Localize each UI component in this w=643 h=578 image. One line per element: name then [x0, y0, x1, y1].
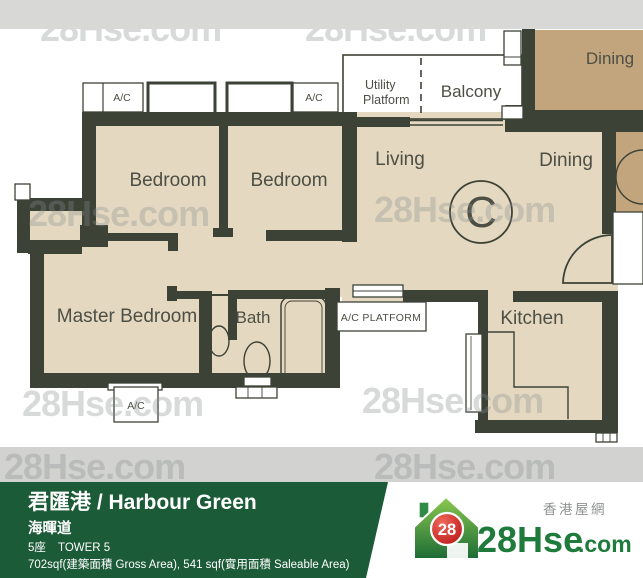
toilet-base: [244, 377, 271, 386]
logo-brand-text: 28Hse: [477, 519, 583, 560]
dining-label: Dining: [539, 150, 593, 171]
area-info: 702sqf(建築面積 Gross Area), 541 sqf(實用面積 Sa…: [28, 557, 350, 571]
ac-label-1: A/C: [113, 92, 131, 104]
tower-en: TOWER 5: [58, 542, 110, 554]
neighbor-strip-floor: [615, 130, 643, 214]
ac-platform-label: A/C PLATFORM: [341, 312, 421, 324]
entry-lobby-box: [613, 212, 643, 284]
watermark: 28Hse.com: [374, 189, 555, 230]
utility-side-box: [504, 31, 521, 65]
bedroom1-label: Bedroom: [129, 170, 206, 191]
kitchen-label: Kitchen: [500, 308, 563, 329]
utility-label-line2: Platform: [363, 93, 410, 107]
living-label: Living: [375, 149, 425, 170]
floorplan-page: Bedroom Bedroom Master Bedroom Bath Livi…: [0, 0, 643, 578]
top-gray-strip: [0, 0, 643, 29]
property-banner: 君匯港 / Harbour Green 海暉道 5座 TOWER 5 702sq…: [0, 482, 388, 578]
logo-brand-suffix: .com: [578, 531, 632, 557]
watermark: 28Hse.com: [28, 193, 209, 234]
bath-vent-box: [236, 387, 277, 398]
site-logo[interactable]: 香港屋網 28 28Hse .com: [414, 497, 632, 560]
neighbor-unit-floor: [530, 30, 643, 112]
balcony-corner-box: [502, 106, 523, 119]
watermark: 28Hse.com: [374, 446, 555, 487]
bath-label: Bath: [236, 308, 271, 327]
watermark: 28Hse.com: [22, 383, 203, 424]
logo-badge-number: 28: [438, 521, 456, 539]
kitchen-vent-box: [596, 433, 617, 442]
bay-window-1: [148, 83, 215, 117]
neighbor-dining-label: Dining: [586, 49, 634, 68]
street-name: 海暉道: [28, 519, 72, 537]
estate-title: 君匯港 / Harbour Green: [28, 490, 257, 514]
floorplan-canvas: Bedroom Bedroom Master Bedroom Bath Livi…: [0, 0, 643, 578]
watermark: 28Hse.com: [4, 446, 185, 487]
master-bedroom-label: Master Bedroom: [57, 306, 197, 327]
utility-label-line1: Utility: [365, 78, 396, 92]
tower-cn: 5座: [28, 540, 46, 554]
balcony-label: Balcony: [441, 82, 502, 101]
watermark: 28Hse.com: [362, 380, 543, 421]
bedroom2-label: Bedroom: [250, 170, 327, 191]
bay-window-2: [227, 83, 292, 117]
site-tagline-cn: 香港屋網: [543, 502, 607, 517]
ac-label-2: A/C: [305, 92, 323, 104]
